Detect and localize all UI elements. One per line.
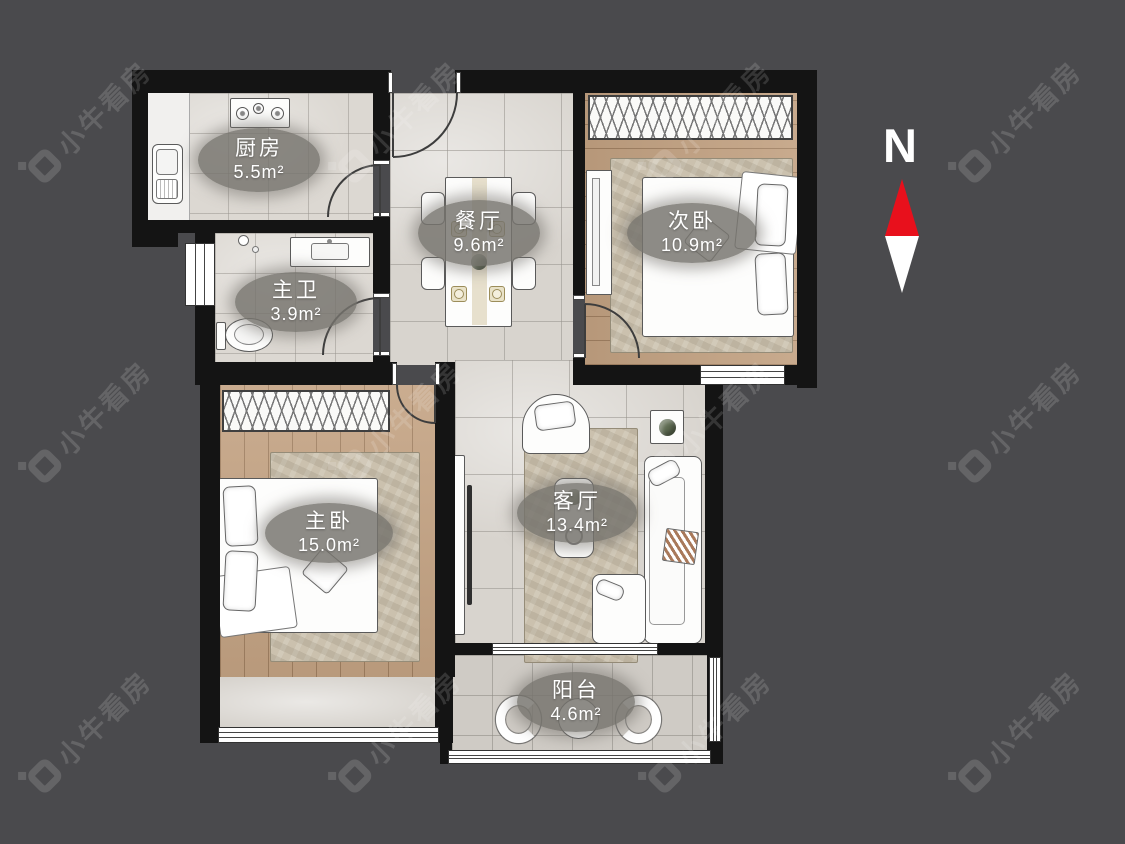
room-area: 9.6m²: [453, 235, 504, 257]
watermark-logo-icon: [25, 446, 65, 486]
room-area: 4.6m²: [550, 704, 601, 726]
room-label-second-bedroom: 次卧 10.9m²: [627, 203, 757, 263]
watermark-text: 小牛看房: [977, 351, 1089, 463]
room-name: 厨房: [235, 136, 283, 162]
watermark-logo-icon: [25, 756, 65, 796]
room-name: 餐厅: [455, 209, 503, 235]
watermark-text: 小牛看房: [977, 661, 1089, 773]
room-name: 主卫: [272, 278, 320, 304]
room-name: 次卧: [668, 209, 716, 235]
room-name: 客厅: [553, 489, 601, 515]
watermark-text: 小牛看房: [977, 51, 1089, 163]
watermark-logo-icon: [955, 146, 995, 186]
room-label-balcony: 阳台 4.6m²: [517, 672, 635, 732]
compass: N: [870, 118, 934, 298]
second-bedroom-door: [585, 304, 639, 358]
room-label-living-room: 客厅 13.4m²: [517, 483, 637, 543]
watermark-logo-icon: [25, 146, 65, 186]
kitchen-door: [328, 165, 380, 217]
room-label-dining: 餐厅 9.6m²: [418, 200, 540, 266]
watermark: 小牛看房: [951, 661, 1090, 800]
watermark-logo-icon: [955, 446, 995, 486]
room-area: 10.9m²: [661, 235, 723, 257]
north-arrow-red: [885, 179, 919, 236]
room-area: 13.4m²: [546, 515, 608, 537]
master-bedroom-door: [397, 385, 435, 423]
watermark-logo-icon: [955, 756, 995, 796]
room-area: 3.9m²: [270, 304, 321, 326]
floorplan-page: { "watermark": { "text": "小牛看房" }, "comp…: [0, 0, 1125, 844]
entry-door: [393, 93, 457, 157]
room-area: 5.5m²: [233, 162, 284, 184]
floor-plan: 厨房 5.5m² 主卫 3.9m² 餐厅 9.6m² 次卧 10.9m² 主卧 …: [130, 60, 830, 770]
room-area: 15.0m²: [298, 535, 360, 557]
watermark: 小牛看房: [951, 351, 1090, 490]
compass-north-label: N: [870, 118, 930, 173]
room-name: 主卧: [305, 509, 353, 535]
room-name: 阳台: [552, 678, 600, 704]
room-label-master-bedroom: 主卧 15.0m²: [265, 503, 393, 563]
watermark: 小牛看房: [951, 51, 1090, 190]
room-label-kitchen: 厨房 5.5m²: [198, 128, 320, 192]
room-label-master-bath: 主卫 3.9m²: [235, 272, 357, 332]
north-arrow-white: [885, 236, 919, 293]
